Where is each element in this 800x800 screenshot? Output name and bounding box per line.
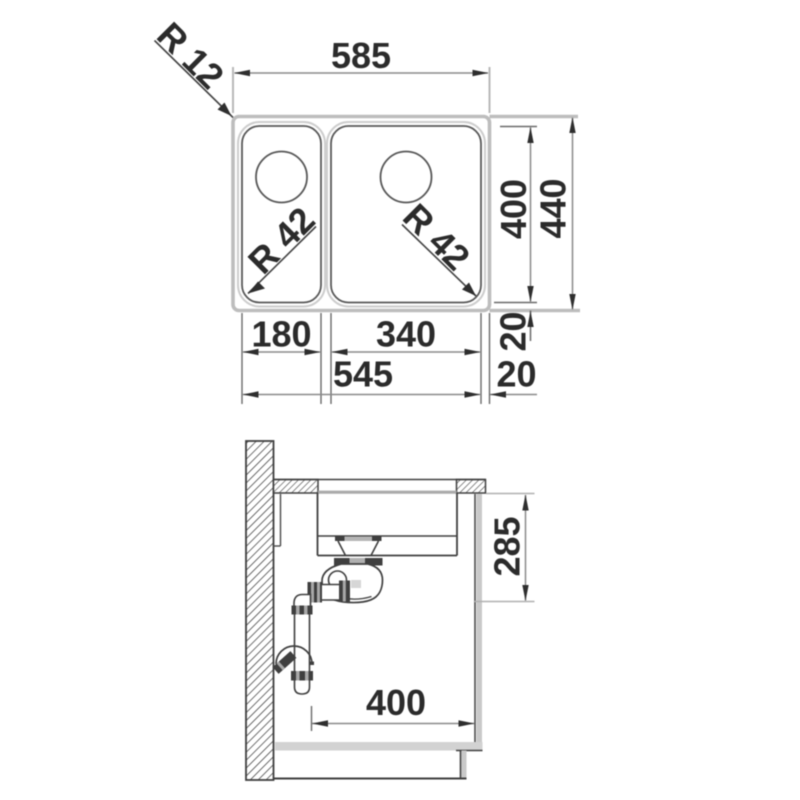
svg-text:400: 400 xyxy=(493,179,534,239)
svg-text:20: 20 xyxy=(496,354,536,395)
svg-text:20: 20 xyxy=(493,311,534,351)
svg-text:285: 285 xyxy=(487,516,528,576)
svg-text:180: 180 xyxy=(251,314,311,355)
svg-text:545: 545 xyxy=(333,354,393,395)
svg-text:400: 400 xyxy=(366,682,426,723)
svg-text:440: 440 xyxy=(533,178,574,238)
svg-text:585: 585 xyxy=(331,35,391,76)
svg-text:340: 340 xyxy=(376,314,436,355)
